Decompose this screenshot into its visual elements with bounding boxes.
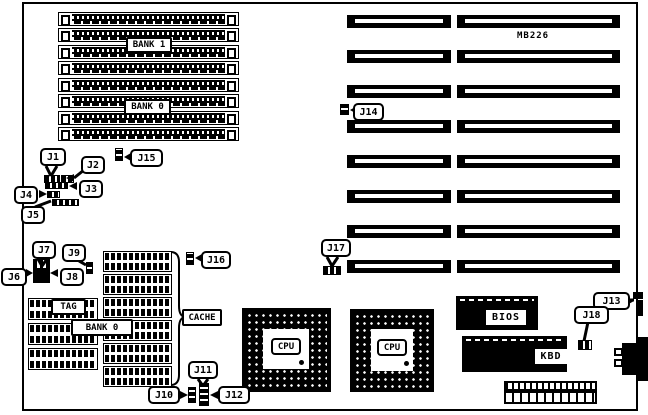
simm-clip-icon (61, 81, 70, 92)
isa-slot (347, 15, 451, 28)
cache-chip (103, 251, 172, 272)
simm-slot (58, 127, 239, 141)
simm-contacts (72, 63, 225, 73)
simm-clip-icon (61, 15, 70, 26)
simm-clip-icon (61, 64, 70, 75)
power-connector-sockets (504, 391, 597, 404)
jumper-label-j5: J5 (21, 206, 45, 224)
regulator-body (33, 269, 50, 283)
power-connector-pins (504, 381, 597, 391)
cpu1-label: CPU (271, 338, 301, 355)
board-model-label: MB226 (517, 31, 549, 41)
isa-slot (457, 50, 620, 63)
simm-slot (58, 12, 239, 26)
jumper-pins-j9 (86, 262, 93, 274)
bank1-label: BANK 1 (126, 37, 172, 53)
isa-slot (457, 85, 620, 98)
simm-clip-icon (227, 97, 236, 108)
jumper-label-j11: J11 (188, 361, 218, 379)
bank0-cache-label: BANK 0 (71, 319, 133, 336)
jumper-label-j3: J3 (79, 180, 103, 198)
regulator-component (33, 259, 50, 283)
j13-connector (637, 300, 643, 316)
jumper-pins-j11-j12 (199, 383, 209, 406)
isa-slot (347, 225, 451, 238)
simm-clip-icon (227, 114, 236, 125)
simm-clip-icon (61, 114, 70, 125)
simm-clip-icon (61, 48, 70, 59)
jumper-pins-j10 (188, 387, 196, 403)
jumper-pins-j3 (45, 182, 68, 189)
jumper-pins-j16 (186, 252, 194, 265)
jumper-pins-j14 (340, 104, 349, 115)
jumper-label-j7: J7 (32, 241, 56, 259)
simm-clip-icon (227, 31, 236, 42)
isa-slot (347, 190, 451, 203)
jumper-pins-j5 (52, 199, 79, 206)
isa-slot (457, 225, 620, 238)
jumper-label-j14: J14 (353, 103, 384, 121)
jumper-pins-j15 (115, 148, 123, 161)
jumper-label-j18: J18 (574, 306, 609, 324)
cpu2-label: CPU (377, 339, 407, 356)
jumper-label-j17: J17 (321, 239, 351, 257)
simm-clip-icon (227, 48, 236, 59)
isa-slot (347, 260, 451, 273)
jumper-label-j4: J4 (14, 186, 38, 204)
simm-clip-icon (61, 130, 70, 141)
simm-clip-icon (61, 97, 70, 108)
jumper-label-j1: J1 (40, 148, 66, 166)
kbd-label: KBD (535, 349, 567, 364)
bank0-memory-label: BANK 0 (124, 99, 171, 115)
simm-clip-icon (227, 15, 236, 26)
isa-slot (347, 50, 451, 63)
pin1-dot-icon (404, 361, 409, 366)
cache-chip (103, 274, 172, 295)
pin1-dot-icon (299, 360, 304, 365)
jumper-label-j12: J12 (218, 386, 250, 404)
isa-slot (457, 155, 620, 168)
tag-label: TAG (51, 299, 86, 315)
isa-slot (347, 85, 451, 98)
isa-slot (457, 120, 620, 133)
jumper-label-j8: J8 (60, 268, 84, 286)
jumper-label-j10: J10 (148, 386, 180, 404)
simm-slot (58, 78, 239, 92)
jumper-label-j16: J16 (201, 251, 231, 269)
din-notch-icon (614, 359, 623, 367)
jumper-label-j2: J2 (81, 156, 105, 174)
motherboard-diagram: BANK 1 BANK 0 MB226 TAG BANK 0 CACHE CPU… (0, 0, 648, 415)
jumper-pins-j17 (323, 266, 341, 275)
cache-chip (103, 366, 172, 387)
regulator-pins (33, 259, 50, 269)
jumper-pins-j18 (578, 340, 592, 350)
din-notch-icon (614, 348, 623, 356)
jumper-label-j9: J9 (62, 244, 86, 262)
isa-slot (457, 260, 620, 273)
cache-chip (103, 297, 172, 318)
simm-clip-icon (227, 64, 236, 75)
isa-slot (347, 155, 451, 168)
isa-slot (457, 15, 620, 28)
simm-contacts (72, 80, 225, 90)
jumper-label-j6: J6 (1, 268, 27, 286)
isa-slot (347, 120, 451, 133)
j13-connector (633, 292, 643, 299)
jumper-pins-j4 (47, 191, 60, 198)
keyboard-din-connector (637, 337, 648, 381)
simm-clip-icon (227, 81, 236, 92)
cache-chip (103, 343, 172, 364)
simm-clip-icon (61, 31, 70, 42)
simm-contacts (72, 14, 225, 24)
simm-slot (58, 61, 239, 75)
isa-slot (457, 190, 620, 203)
simm-contacts (72, 129, 225, 139)
jumper-label-j15: J15 (130, 149, 163, 167)
simm-clip-icon (227, 130, 236, 141)
cache-label: CACHE (182, 309, 222, 326)
bank0-chip (28, 348, 98, 370)
bios-label: BIOS (486, 310, 526, 325)
